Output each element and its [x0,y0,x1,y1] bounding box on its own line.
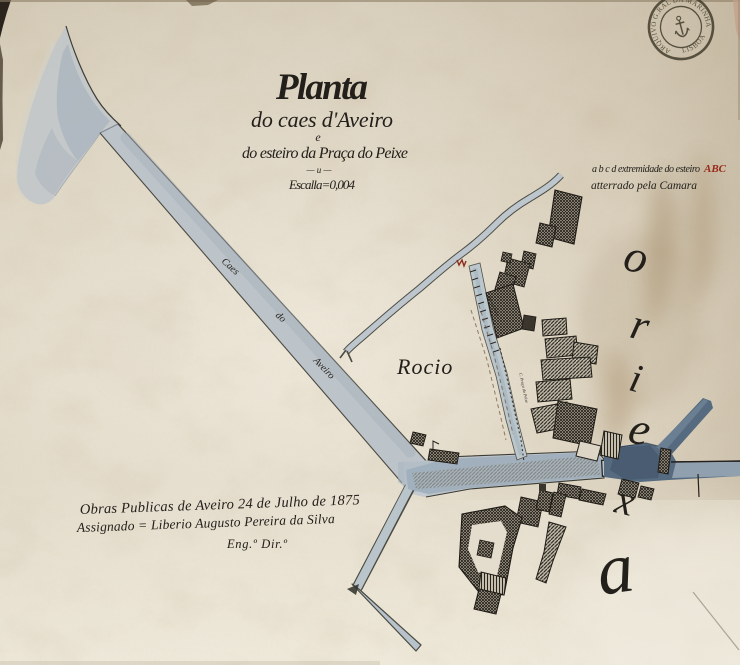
svg-text:a b c d extremidade do esteiro: a b c d extremidade do esteiro [592,164,700,175]
svg-text:Rocio: Rocio [396,354,453,379]
svg-text:ABC: ABC [703,163,727,175]
svg-text:Planta: Planta [275,67,368,108]
svg-text:do esteiro da Praça do Peixe: do esteiro da Praça do Peixe [242,145,408,162]
svg-text:do caes d'Aveiro: do caes d'Aveiro [251,107,393,132]
svg-text:Escalla=0,004: Escalla=0,004 [288,177,356,192]
svg-text:e: e [315,130,321,144]
svg-text:Eng.º Dir.º: Eng.º Dir.º [226,537,288,551]
svg-text:— u —: — u — [305,165,332,175]
svg-text:atterrado pela Camara: atterrado pela Camara [591,180,697,192]
